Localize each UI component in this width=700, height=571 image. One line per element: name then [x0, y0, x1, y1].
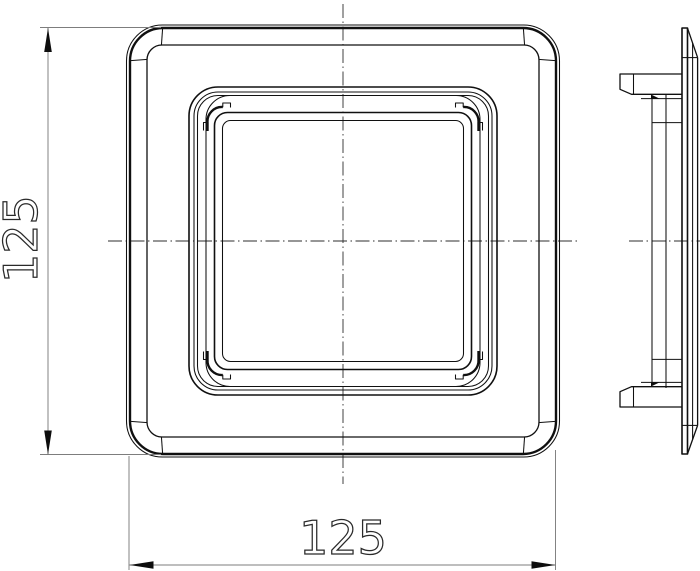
arrowhead-down — [44, 431, 52, 455]
tab-fillet — [651, 382, 660, 386]
tab-fillet — [651, 95, 660, 99]
dimension-value-width: 125 — [299, 511, 387, 565]
arrowhead-right — [532, 561, 556, 569]
technical-drawing: 125 125 — [0, 0, 700, 571]
side-view — [620, 28, 700, 454]
dimension-value-height: 125 — [0, 195, 48, 283]
arrowhead-left — [130, 561, 154, 569]
arrowhead-up — [44, 28, 52, 52]
width-dimension: 125 — [129, 450, 556, 570]
bottom-snap-tab — [620, 382, 682, 407]
drawing-sheet: 125 125 — [0, 0, 700, 571]
front-view — [108, 4, 577, 484]
top-snap-tab — [620, 74, 682, 99]
